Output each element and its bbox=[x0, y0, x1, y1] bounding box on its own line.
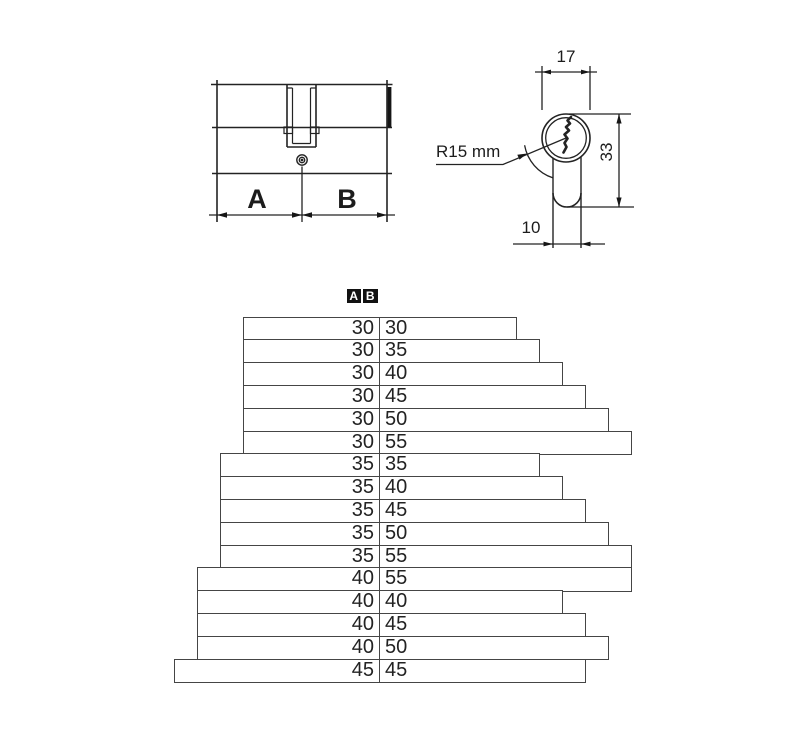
size-divider bbox=[379, 340, 381, 362]
size-b-value: 50 bbox=[385, 523, 608, 545]
dim-b-label: B bbox=[322, 186, 372, 213]
size-b-value: 35 bbox=[385, 340, 539, 362]
size-divider bbox=[379, 500, 381, 522]
size-b-value: 45 bbox=[385, 660, 585, 682]
size-bar: 4040 bbox=[197, 590, 563, 614]
size-divider bbox=[379, 409, 381, 431]
size-a-value: 30 bbox=[244, 363, 374, 385]
size-bar: 3030 bbox=[243, 317, 518, 341]
size-divider bbox=[379, 523, 381, 545]
size-a-value: 30 bbox=[244, 340, 374, 362]
size-bar: 3550 bbox=[220, 522, 609, 546]
size-b-value: 55 bbox=[385, 432, 631, 454]
size-divider bbox=[379, 660, 381, 682]
catalog-page: 17 33 10 R15 mm A B A B 3030303530403045… bbox=[0, 0, 800, 752]
size-divider bbox=[379, 454, 381, 476]
size-bar: 3055 bbox=[243, 431, 632, 455]
size-bar: 3535 bbox=[220, 453, 541, 477]
size-bar: 4545 bbox=[174, 659, 586, 683]
size-divider bbox=[379, 614, 381, 636]
radius-leader-arrow bbox=[517, 154, 527, 160]
radius-arc bbox=[525, 145, 553, 178]
size-b-value: 35 bbox=[385, 454, 539, 476]
size-a-value: 40 bbox=[198, 637, 374, 659]
dim-33-label: 33 bbox=[596, 132, 616, 172]
screw-icon bbox=[297, 155, 307, 165]
size-divider bbox=[379, 546, 381, 568]
size-a-value: 30 bbox=[244, 409, 374, 431]
table-header-b: B bbox=[363, 289, 378, 304]
size-b-value: 40 bbox=[385, 363, 562, 385]
size-b-value: 40 bbox=[385, 591, 562, 613]
size-divider bbox=[379, 568, 381, 590]
size-a-value: 35 bbox=[221, 546, 374, 568]
size-divider bbox=[379, 363, 381, 385]
radius-label: R15 mm bbox=[436, 143, 500, 160]
size-divider bbox=[379, 477, 381, 499]
size-bar: 3545 bbox=[220, 499, 586, 523]
size-a-value: 35 bbox=[221, 454, 374, 476]
size-divider bbox=[379, 318, 381, 340]
size-b-value: 50 bbox=[385, 637, 608, 659]
dim-10-label: 10 bbox=[509, 219, 553, 236]
size-bar: 3050 bbox=[243, 408, 609, 432]
size-bar: 3540 bbox=[220, 476, 564, 500]
table-header-a: A bbox=[347, 289, 362, 304]
dim-a-label: A bbox=[232, 186, 282, 213]
size-bar: 3555 bbox=[220, 545, 632, 569]
size-divider bbox=[379, 591, 381, 613]
dim-17-label: 17 bbox=[544, 48, 588, 65]
size-a-value: 30 bbox=[244, 386, 374, 408]
size-b-value: 40 bbox=[385, 477, 562, 499]
size-a-value: 35 bbox=[221, 523, 374, 545]
cam-slot bbox=[284, 85, 319, 148]
size-bar: 4050 bbox=[197, 636, 609, 660]
size-a-value: 35 bbox=[221, 477, 374, 499]
size-bar: 3045 bbox=[243, 385, 587, 409]
stem-bottom-arc bbox=[553, 193, 581, 207]
size-bar: 3040 bbox=[243, 362, 564, 386]
size-a-value: 45 bbox=[175, 660, 374, 682]
size-a-value: 30 bbox=[244, 318, 374, 340]
size-bar: 4045 bbox=[197, 613, 586, 637]
size-b-value: 45 bbox=[385, 500, 585, 522]
size-a-value: 40 bbox=[198, 614, 374, 636]
size-b-value: 55 bbox=[385, 546, 631, 568]
size-bar: 4055 bbox=[197, 567, 632, 591]
size-divider bbox=[379, 637, 381, 659]
size-b-value: 45 bbox=[385, 614, 585, 636]
end-cap-bar bbox=[388, 87, 392, 128]
size-a-value: 40 bbox=[198, 568, 374, 590]
size-bar: 3035 bbox=[243, 339, 541, 363]
size-b-value: 30 bbox=[385, 318, 516, 340]
size-a-value: 40 bbox=[198, 591, 374, 613]
keyway-icon bbox=[564, 117, 572, 153]
size-divider bbox=[379, 386, 381, 408]
size-b-value: 55 bbox=[385, 568, 631, 590]
size-b-value: 45 bbox=[385, 386, 585, 408]
size-a-value: 30 bbox=[244, 432, 374, 454]
size-a-value: 35 bbox=[221, 500, 374, 522]
size-divider bbox=[379, 432, 381, 454]
size-b-value: 50 bbox=[385, 409, 608, 431]
